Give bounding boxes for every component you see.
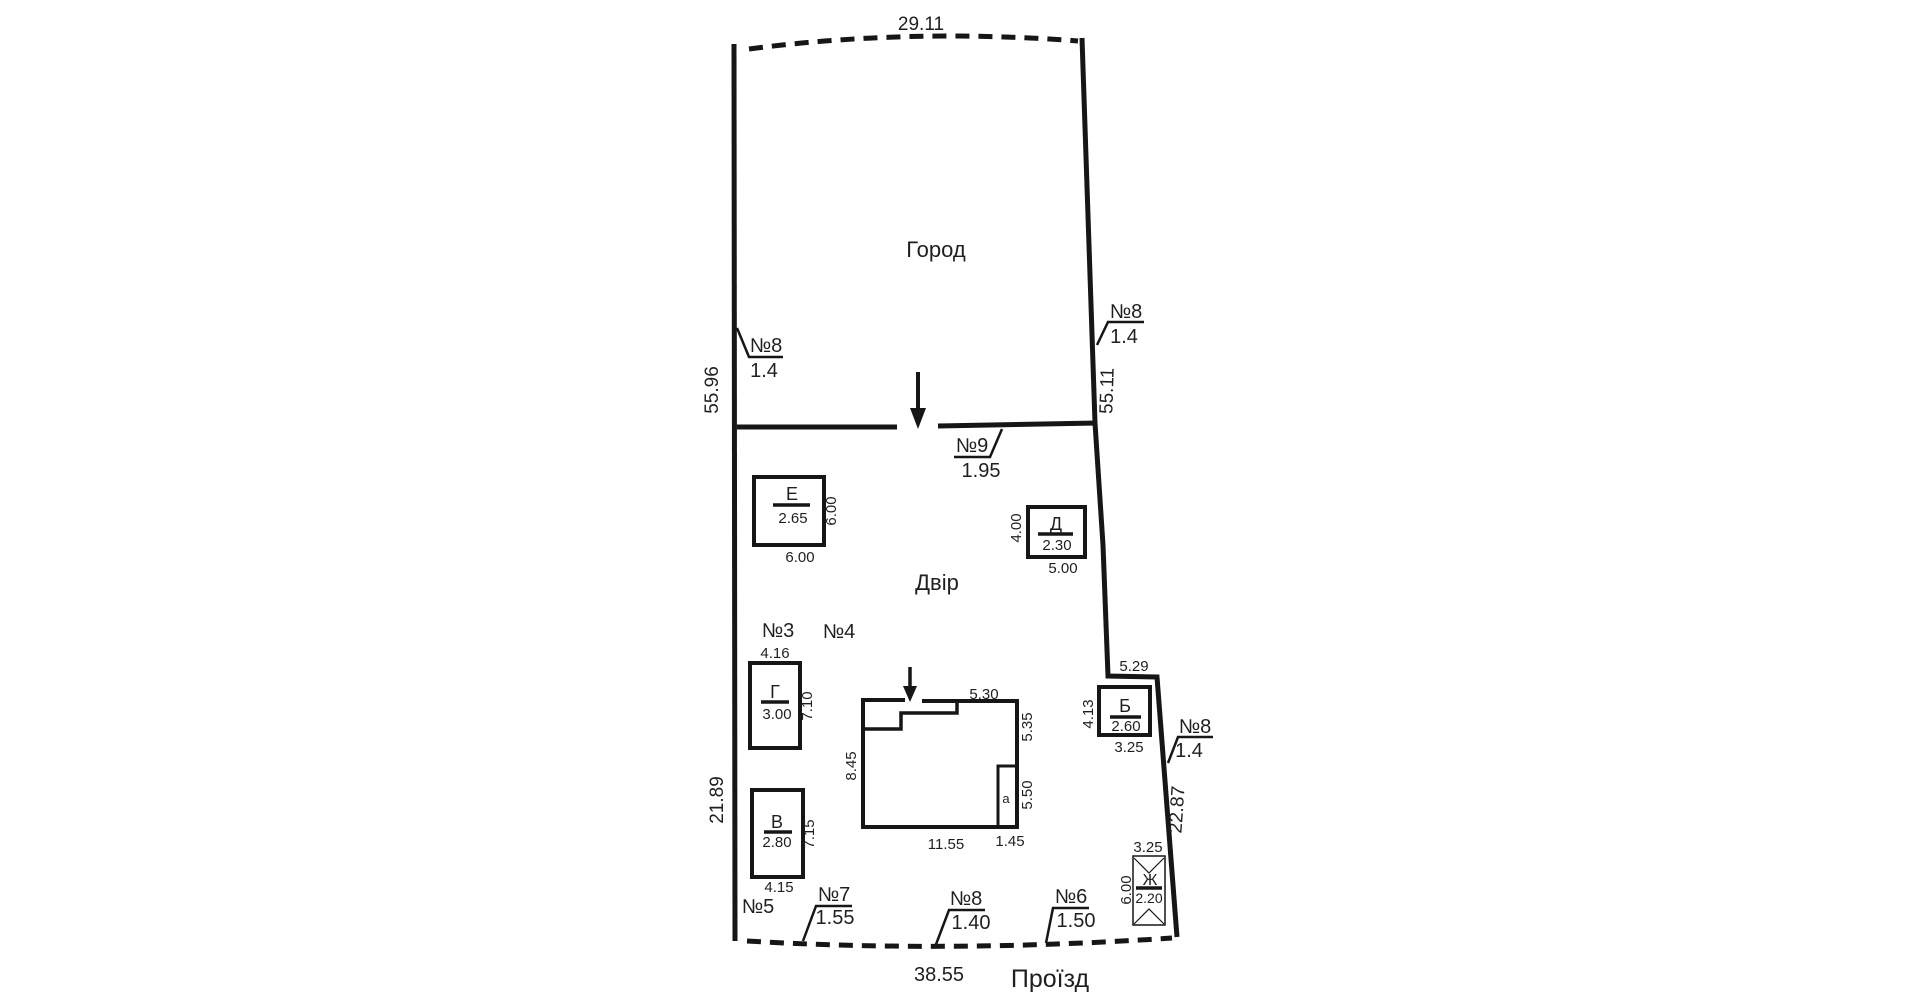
building-B-letter: Б — [1119, 696, 1131, 716]
building-G-top-dim: 4.16 — [760, 645, 789, 662]
fence9-w: 1.95 — [962, 460, 1001, 482]
building-D-side-dim: 4.00 — [1008, 513, 1025, 542]
site-plan-drawing: Город Двір Проїзд 29.11 55.96 21.89 55.1… — [0, 0, 1920, 1006]
fence9-no: №9 — [956, 435, 989, 457]
building-E-letter: Е — [786, 484, 798, 504]
plot-plan-canvas: Город Двір Проїзд 29.11 55.96 21.89 55.1… — [0, 0, 1920, 1006]
house-entrance-arrow-head-icon — [903, 686, 917, 702]
fence8-right-w: 1.4 — [1110, 326, 1138, 348]
fence8-left-w: 1.4 — [750, 360, 778, 382]
house-outline — [863, 700, 1017, 827]
area-label-garden: Город — [906, 237, 966, 262]
fence7-no: №7 — [818, 884, 851, 906]
building-V-h: 2.80 — [762, 834, 791, 851]
boundary-top-dashed — [749, 36, 1078, 49]
building-E-side-dim: 6.00 — [823, 496, 840, 525]
boundary-bottom-dashed — [747, 938, 1172, 946]
house-room-a-label: a — [1002, 791, 1010, 806]
building-D-letter: Д — [1050, 514, 1062, 534]
boundary-left — [734, 44, 735, 941]
gate-arrow-head-icon — [910, 408, 926, 429]
building-V-bottom-dim: 4.15 — [764, 879, 793, 896]
dim-bottom: 38.55 — [914, 964, 964, 986]
building-E-h: 2.65 — [778, 510, 807, 527]
building-Zh-side-dim: 6.00 — [1118, 875, 1135, 904]
building-B-bottom-dim: 3.25 — [1114, 739, 1143, 756]
area-label-passage: Проїзд — [1011, 965, 1090, 993]
building-G-h: 3.00 — [762, 706, 791, 723]
boundary-right — [1082, 38, 1177, 937]
fence8-right-no: №8 — [1110, 301, 1143, 323]
building-Zh-h: 2.20 — [1135, 890, 1162, 906]
fence8-bottom-no: №8 — [950, 888, 983, 910]
building-Zh-letter: Ж — [1143, 872, 1158, 889]
building-B-side-dim: 4.13 — [1080, 699, 1097, 728]
house-right-lower-dim: 5.50 — [1019, 780, 1036, 809]
house-bottom-dim: 11.55 — [928, 836, 964, 853]
area-label-yard: Двір — [915, 570, 959, 595]
building-Zh-top-dim: 3.25 — [1133, 839, 1162, 856]
fence5-no: №5 — [742, 896, 775, 918]
fence8-bottom-w: 1.40 — [952, 912, 991, 934]
dim-right-jog: 5.29 — [1119, 658, 1148, 675]
dim-top: 29.11 — [898, 14, 944, 35]
house-right-upper-dim: 5.35 — [1019, 712, 1036, 741]
fence8-left-no: №8 — [750, 335, 783, 357]
building-G-side-dim: 7.10 — [799, 691, 816, 720]
fence6-no: №6 — [1055, 886, 1088, 908]
fence-divider-right — [938, 423, 1097, 426]
house-bottom-right-dim: 1.45 — [995, 833, 1024, 850]
house-top-dim: 5.30 — [969, 686, 998, 703]
dim-right-upper: 55.11 — [1096, 367, 1119, 414]
fence8-near-b-no: №8 — [1179, 716, 1212, 738]
building-D-bottom-dim: 5.00 — [1048, 560, 1077, 577]
fence6-w: 1.50 — [1057, 910, 1096, 932]
building-G-letter: Г — [770, 682, 780, 702]
building-V-letter: В — [771, 812, 783, 832]
building-B-h: 2.60 — [1111, 718, 1140, 735]
building-D-h: 2.30 — [1042, 537, 1071, 554]
fence4-no: №4 — [823, 621, 856, 643]
fence7-w: 1.55 — [816, 907, 855, 929]
dim-right-lower: 22.87 — [1165, 785, 1189, 834]
house-left-dim: 8.45 — [843, 751, 860, 780]
building-E-bottom-dim: 6.00 — [785, 549, 814, 566]
fence3-no: №3 — [762, 620, 795, 642]
house-porch-step — [863, 702, 957, 729]
building-V-side-dim: 7.15 — [801, 819, 818, 848]
dim-left-lower: 21.89 — [707, 776, 728, 824]
dim-left-upper: 55.96 — [702, 366, 723, 414]
fence8-near-b-w: 1.4 — [1175, 740, 1203, 762]
